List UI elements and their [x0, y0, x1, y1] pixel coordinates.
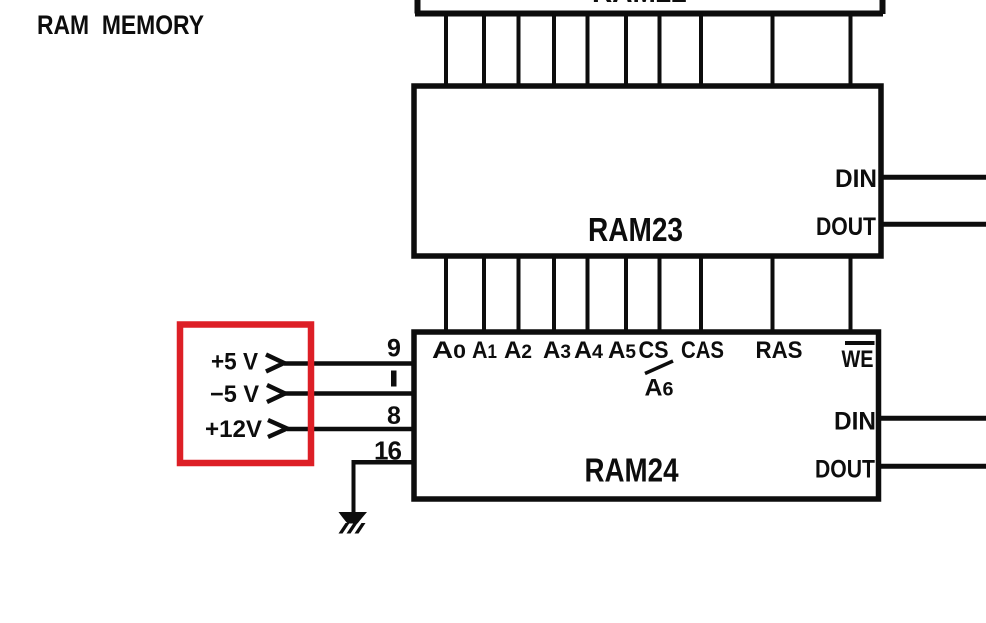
- svg-text:CS: CS: [639, 337, 669, 364]
- svg-text:RAM22: RAM22: [592, 0, 687, 9]
- svg-text:RAM23: RAM23: [588, 211, 683, 248]
- svg-text:A4: A4: [574, 337, 603, 364]
- svg-text:RAM MEMORY: RAM MEMORY: [37, 10, 204, 40]
- svg-text:DOUT: DOUT: [816, 213, 876, 241]
- svg-text:A3: A3: [543, 337, 571, 364]
- svg-text:+5 V: +5 V: [211, 349, 258, 376]
- svg-text:A0: A0: [432, 337, 466, 364]
- svg-text:DIN: DIN: [835, 165, 877, 193]
- svg-text:DOUT: DOUT: [815, 456, 875, 484]
- svg-text:WE: WE: [842, 346, 874, 373]
- svg-text:9: 9: [387, 335, 401, 363]
- svg-text:DIN: DIN: [834, 408, 876, 436]
- svg-text:RAM24: RAM24: [585, 452, 680, 489]
- svg-text:+12V: +12V: [205, 416, 262, 443]
- svg-text:A1: A1: [472, 337, 497, 364]
- svg-text:A2: A2: [504, 337, 532, 364]
- svg-text:A6: A6: [645, 375, 674, 402]
- svg-text:CAS: CAS: [681, 337, 724, 364]
- svg-text:8: 8: [387, 402, 401, 430]
- svg-text:RAS: RAS: [756, 337, 803, 364]
- svg-text:−5 V: −5 V: [210, 381, 259, 408]
- svg-text:A5: A5: [608, 337, 636, 364]
